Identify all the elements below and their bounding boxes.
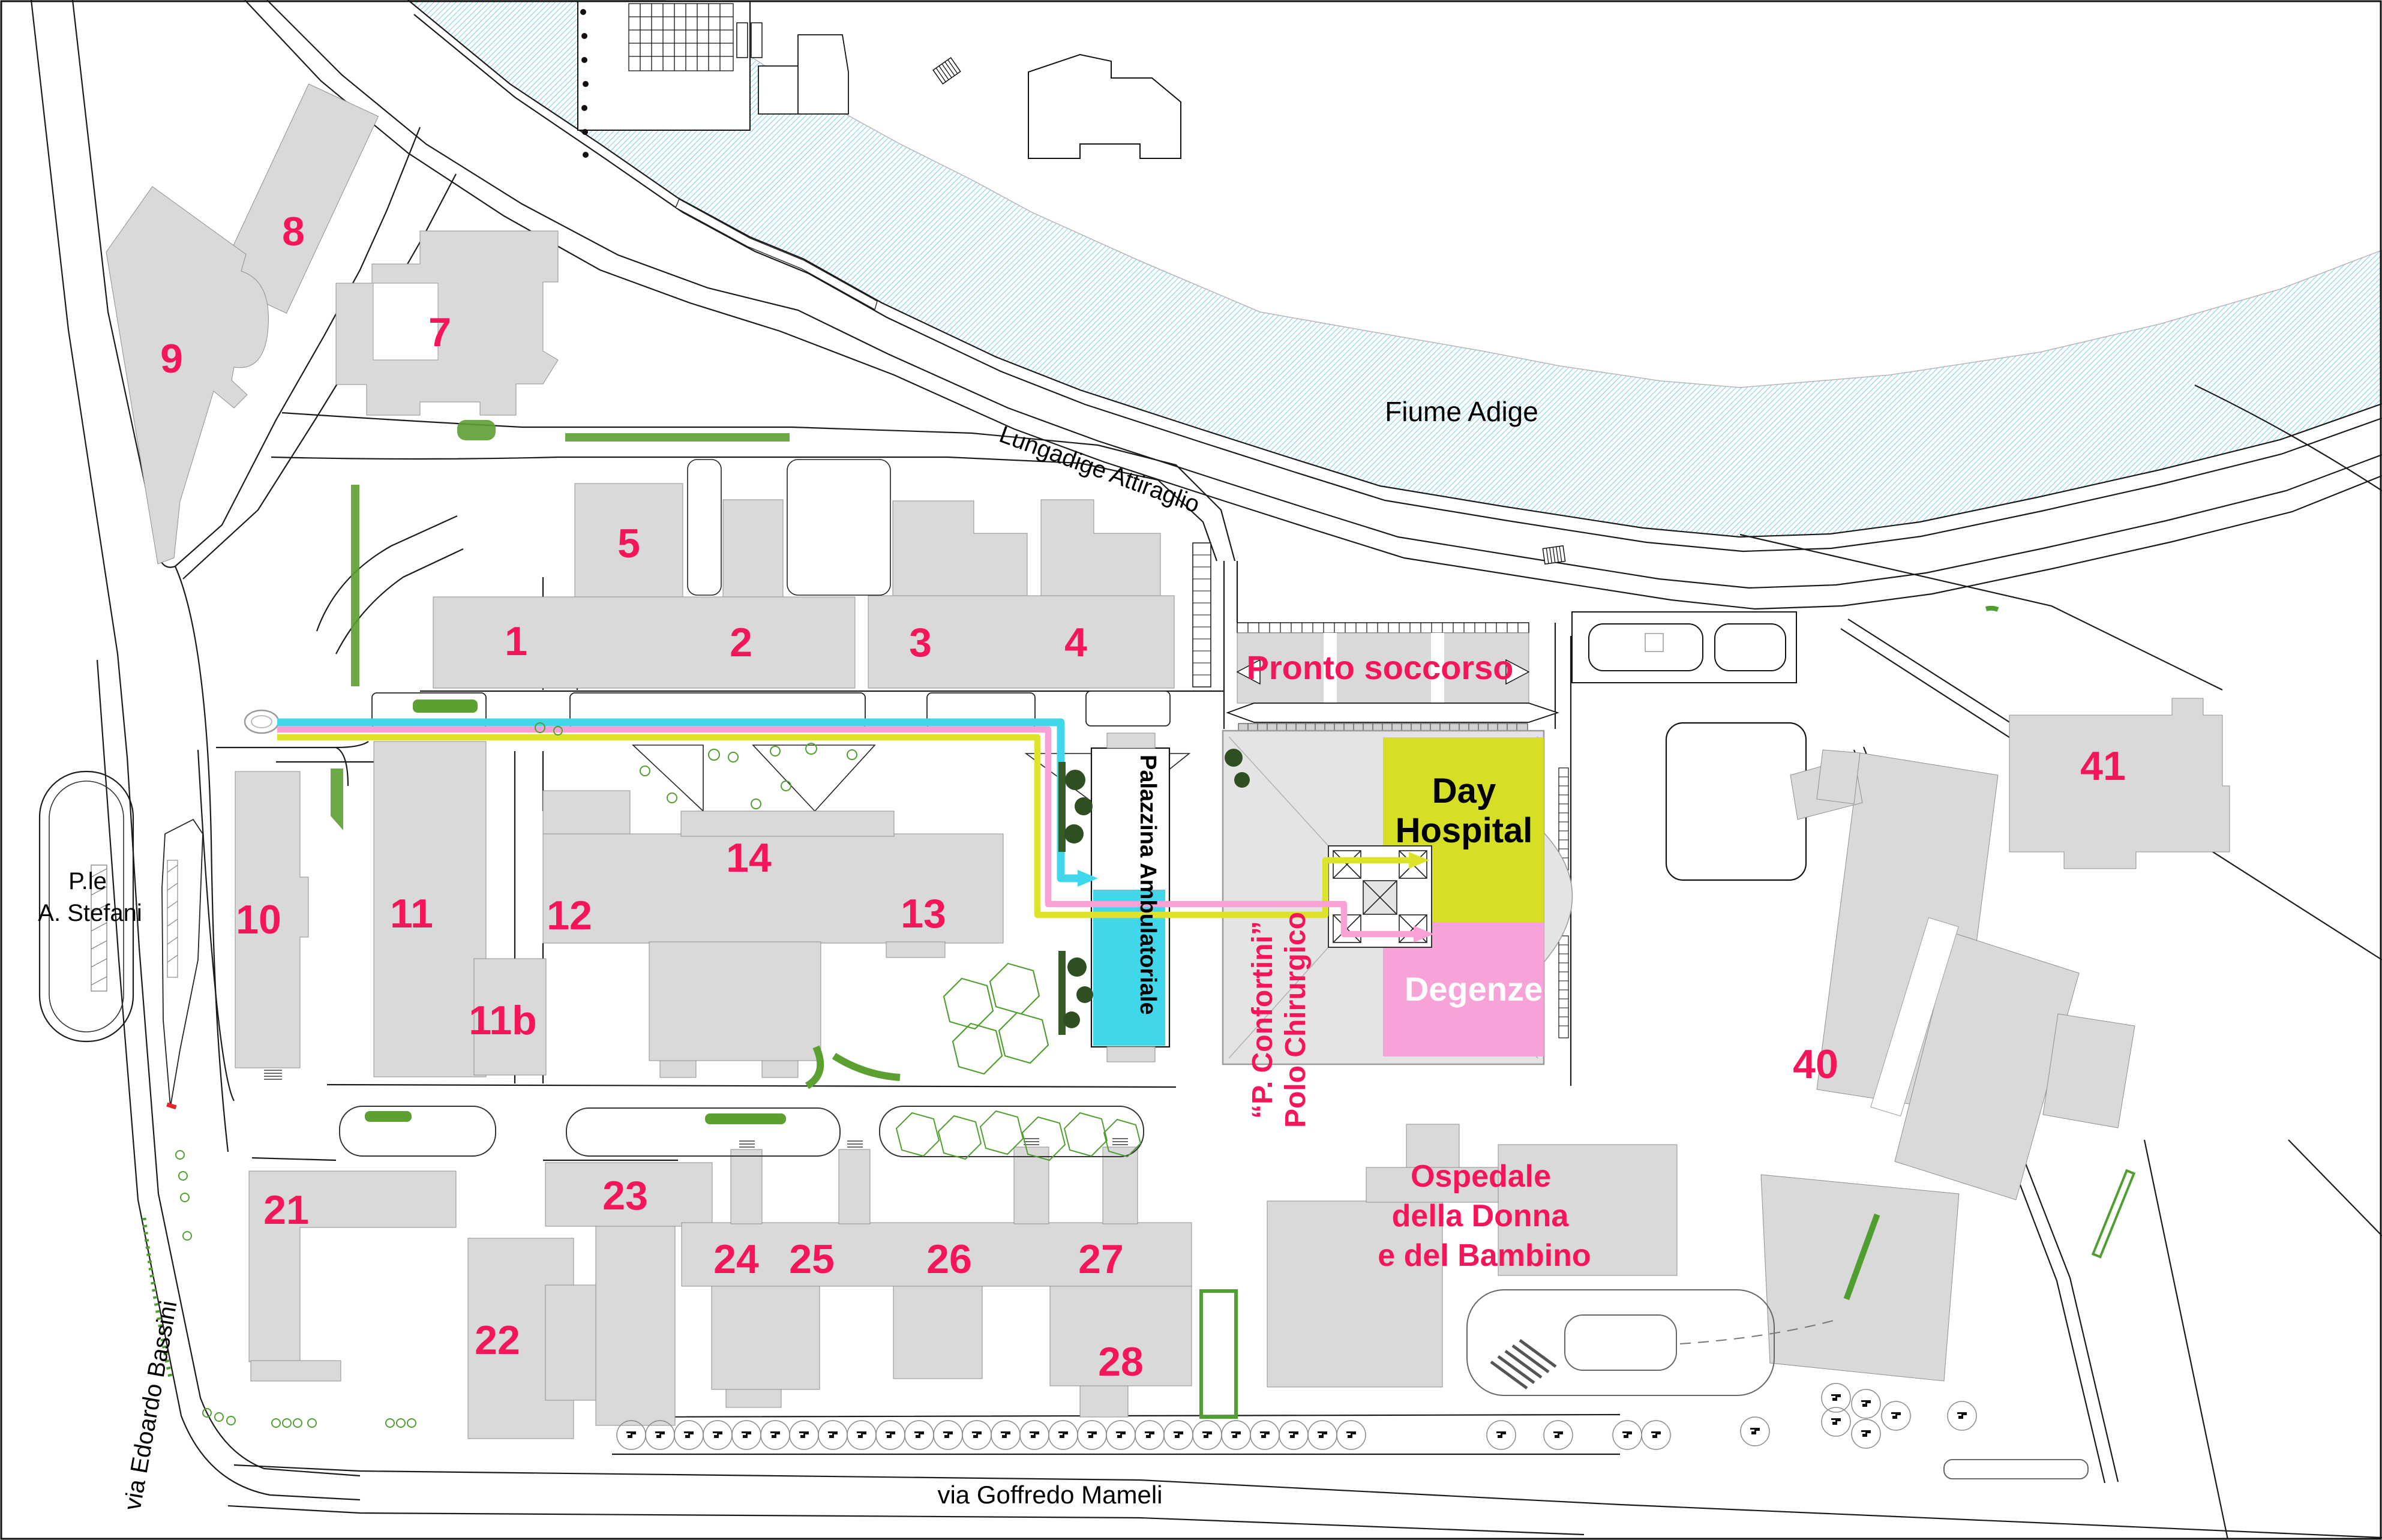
- svg-text:9: 9: [160, 336, 183, 382]
- svg-text:25: 25: [789, 1236, 835, 1282]
- svg-text:13: 13: [901, 891, 946, 936]
- svg-text:40: 40: [1793, 1041, 1838, 1087]
- svg-text:28: 28: [1098, 1339, 1144, 1385]
- svg-text:Palazzina Ambulatoriale: Palazzina Ambulatoriale: [1135, 755, 1160, 1015]
- svg-text:1: 1: [505, 619, 527, 664]
- svg-text:41: 41: [2080, 743, 2126, 789]
- svg-text:22: 22: [475, 1317, 520, 1363]
- svg-text:2: 2: [730, 620, 752, 665]
- svg-text:della Donna: della Donna: [1392, 1199, 1570, 1233]
- svg-text:Pronto soccorso: Pronto soccorso: [1247, 649, 1514, 686]
- svg-text:via Goffredo Mameli: via Goffredo Mameli: [937, 1481, 1162, 1509]
- svg-text:23: 23: [602, 1173, 648, 1218]
- svg-text:Degenze: Degenze: [1405, 970, 1543, 1008]
- svg-text:A. Stefani: A. Stefani: [38, 900, 142, 926]
- svg-text:10: 10: [236, 897, 281, 942]
- svg-text:3: 3: [909, 620, 932, 665]
- svg-text:e del Bambino: e del Bambino: [1378, 1238, 1591, 1273]
- svg-text:Hospital: Hospital: [1396, 811, 1533, 850]
- svg-text:7: 7: [428, 310, 451, 355]
- svg-text:14: 14: [726, 835, 772, 881]
- svg-text:21: 21: [263, 1187, 309, 1233]
- svg-text:Polo Chirurgico: Polo Chirurgico: [1280, 912, 1312, 1128]
- svg-text:8: 8: [282, 209, 305, 254]
- svg-text:P.le: P.le: [68, 868, 107, 894]
- svg-text:4: 4: [1064, 620, 1087, 665]
- svg-text:11: 11: [390, 891, 433, 936]
- svg-text:Day: Day: [1432, 771, 1496, 810]
- svg-text:“P. Confortini”: “P. Confortini”: [1247, 921, 1279, 1119]
- svg-text:11b: 11b: [469, 998, 536, 1043]
- svg-text:Fiume Adige: Fiume Adige: [1385, 396, 1538, 427]
- svg-text:12: 12: [547, 893, 592, 938]
- svg-text:27: 27: [1078, 1236, 1124, 1282]
- svg-text:5: 5: [617, 521, 640, 566]
- svg-text:Ospedale: Ospedale: [1411, 1159, 1551, 1194]
- svg-text:24: 24: [713, 1236, 759, 1282]
- svg-text:26: 26: [926, 1236, 972, 1282]
